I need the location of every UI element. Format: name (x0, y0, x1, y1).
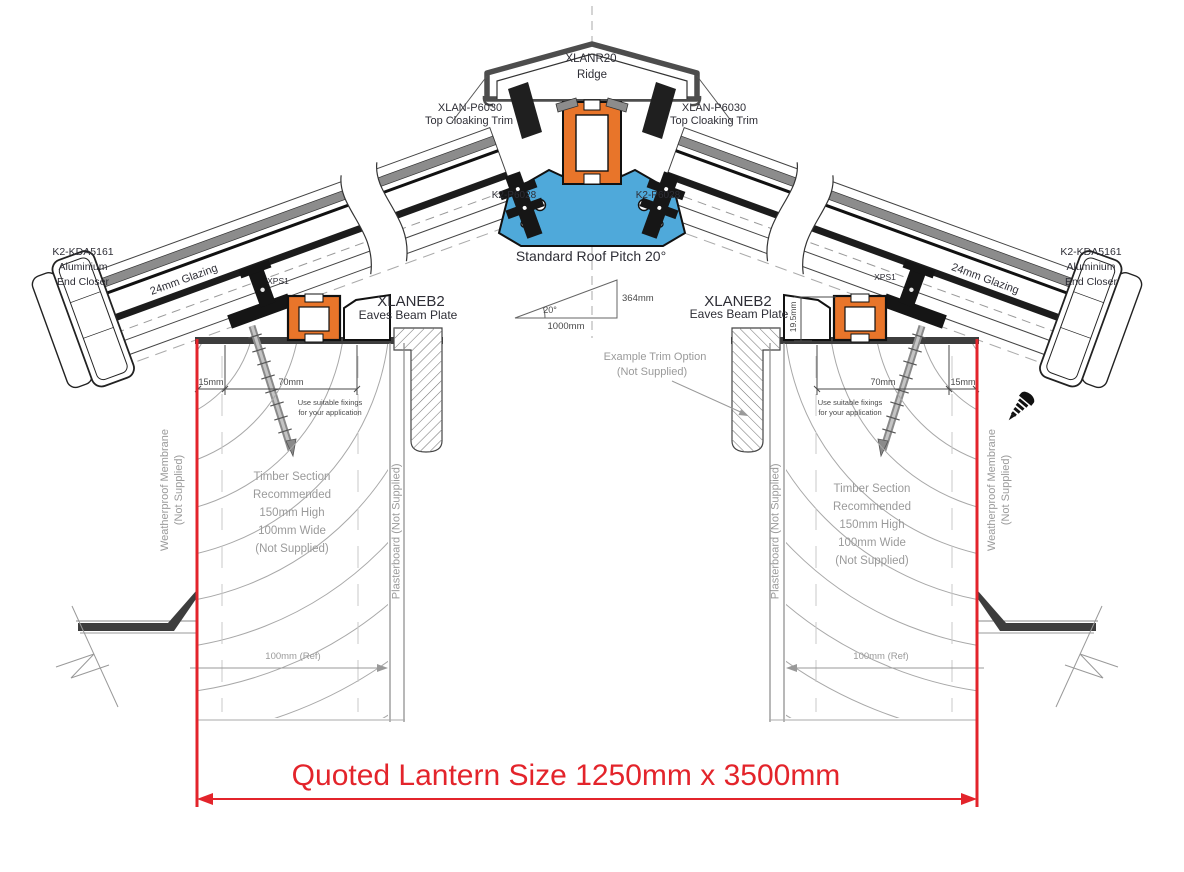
end-closer-left-name: End Closer (38, 276, 128, 288)
fixing-screw (248, 326, 296, 456)
pitch-triangle (515, 280, 617, 318)
timber-note-right-3: 150mm High (792, 516, 952, 534)
end-closer-left-code: K2-KDA5161 (38, 246, 128, 258)
timber-note-right-2: Recommended (792, 498, 952, 516)
beam-height-label: 19.5mm (789, 287, 799, 347)
timber-note-left-3: 150mm High (212, 504, 372, 522)
ridge-name-label: Ridge (552, 69, 632, 82)
dim-70mm-right: 70mm (853, 377, 913, 387)
pitch-angle-label: 20° (536, 305, 564, 315)
timber-note-left-1: Timber Section (212, 468, 372, 486)
pitch-note-label: Standard Roof Pitch 20° (491, 248, 691, 264)
dim-15mm-left: 15mm (186, 377, 236, 387)
ridge-fixing-left-label: K2-P6028 (474, 190, 554, 202)
fixing-note-left-1: Use suitable fixings (275, 399, 385, 408)
quoted-size-label: Quoted Lantern Size 1250mm x 3500mm (216, 759, 916, 794)
end-closer-right-code: K2-KDA5161 (1046, 246, 1136, 258)
trim-note-line1: Example Trim Option (575, 351, 735, 364)
timber-note-left-2: Recommended (212, 486, 372, 504)
timber-note-left: Timber Section Recommended 150mm High 10… (212, 468, 372, 558)
timber-note-left-4: 100mm Wide (212, 522, 372, 540)
cloaking-trim-right-code: XLAN-P6030 (654, 102, 774, 115)
quoted-size-dimension (197, 793, 977, 805)
fixing-note-left-2: for your application (275, 409, 385, 418)
timber-note-right-5: (Not Supplied) (792, 552, 952, 570)
dim-15mm-right: 15mm (938, 377, 988, 387)
width-dimensions (195, 345, 360, 395)
membrane-left-1: Weatherproof Membrane (158, 390, 172, 590)
eaves-beam-left-name: Eaves Beam Plate (338, 309, 478, 323)
quoted-size-line (196, 339, 199, 807)
timber-note-right: Timber Section Recommended 150mm High 10… (792, 480, 952, 570)
membrane-right-2: (Not Supplied) (999, 390, 1013, 590)
outer-roof (56, 591, 196, 707)
membrane-right-1: Weatherproof Membrane (985, 390, 999, 590)
timber-note-right-4: 100mm Wide (792, 534, 952, 552)
cloaking-trim-left-name: Top Cloaking Trim (409, 115, 529, 128)
cloaking-trim-right-name: Top Cloaking Trim (654, 115, 774, 128)
membrane-right-label: Weatherproof Membrane (Not Supplied) (985, 390, 1013, 590)
ridge-fixing-right-label: K2-P6028 (618, 190, 698, 202)
dim-70mm-left: 70mm (261, 377, 321, 387)
membrane-left-label: Weatherproof Membrane (Not Supplied) (158, 390, 186, 590)
ref-dim-right-label: 100mm (Ref) (831, 652, 931, 663)
cloaking-trim-left-code: XLAN-P6030 (410, 102, 530, 115)
ref-dim-left-label: 100mm (Ref) (243, 652, 343, 663)
ridge-code-label: XLANR20 (549, 53, 633, 66)
fixing-note-right-2: for your application (795, 409, 905, 418)
plasterboard-left-label: Plasterboard (Not Supplied) (391, 431, 404, 631)
fixing-note-right-1: Use suitable fixings (795, 399, 905, 408)
timber-note-right-1: Timber Section (792, 480, 952, 498)
trim-note-line2: (Not Supplied) (572, 366, 732, 379)
end-closer-left-material: Aluminium (38, 261, 128, 273)
end-closer-right-material: Aluminium (1046, 261, 1136, 273)
lantern-section-drawing: XLANR20 Ridge XLAN-P6030 Top Cloaking Tr… (0, 0, 1184, 872)
membrane-left-2: (Not Supplied) (172, 390, 186, 590)
plasterboard-right-label: Plasterboard (Not Supplied) (770, 431, 783, 631)
xps-right-label: XPS1 (865, 273, 905, 283)
end-closer-right-name: End Closer (1046, 276, 1136, 288)
timber-note-left-5: (Not Supplied) (212, 540, 372, 558)
pitch-base-label: 1000mm (526, 322, 606, 333)
xps-left-label: XPS1 (258, 277, 298, 287)
